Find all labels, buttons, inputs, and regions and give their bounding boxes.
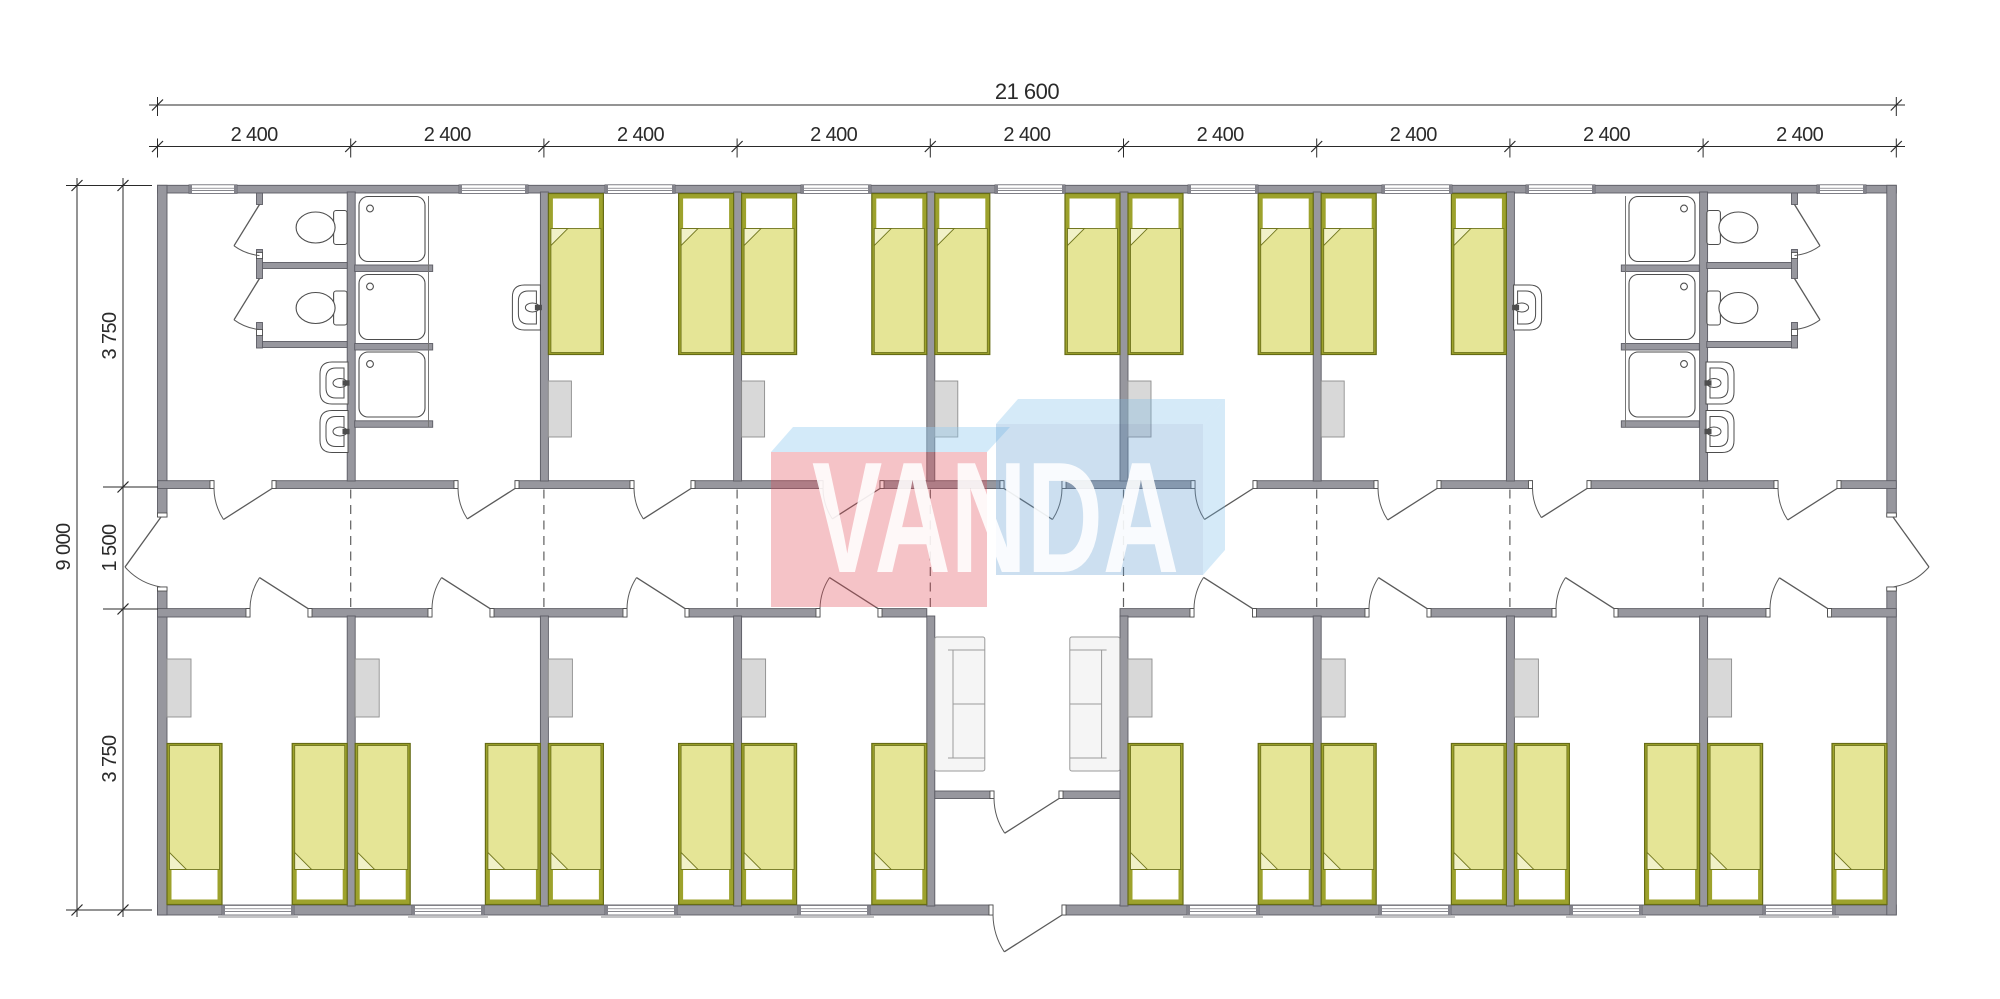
svg-text:1 500: 1 500 <box>99 524 121 572</box>
svg-text:2 400: 2 400 <box>231 124 279 146</box>
svg-text:2 400: 2 400 <box>810 124 858 146</box>
svg-text:3 750: 3 750 <box>99 312 121 360</box>
svg-text:21 600: 21 600 <box>995 79 1060 104</box>
svg-text:2 400: 2 400 <box>1197 124 1245 146</box>
svg-text:2 400: 2 400 <box>424 124 472 146</box>
svg-text:2 400: 2 400 <box>617 124 665 146</box>
svg-text:3 750: 3 750 <box>99 735 121 783</box>
svg-text:2 400: 2 400 <box>1003 124 1051 146</box>
svg-text:2 400: 2 400 <box>1583 124 1631 146</box>
svg-text:VANDA: VANDA <box>812 430 1179 606</box>
svg-text:9 000: 9 000 <box>53 523 75 571</box>
svg-text:2 400: 2 400 <box>1390 124 1438 146</box>
svg-text:2 400: 2 400 <box>1776 124 1824 146</box>
